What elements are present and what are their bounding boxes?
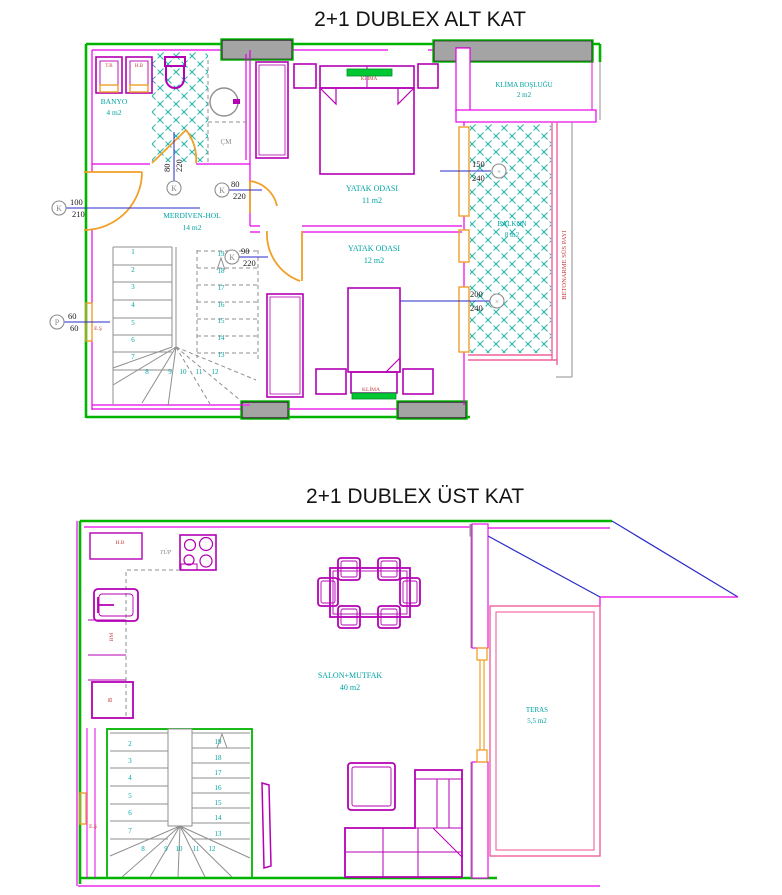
svg-text:11: 11 — [193, 845, 200, 853]
fridge: B — [92, 682, 133, 718]
svg-text:15: 15 — [215, 799, 223, 807]
svg-text:K: K — [171, 184, 177, 193]
svg-text:2: 2 — [131, 266, 135, 274]
svg-text:MERDİVEN-HOL: MERDİVEN-HOL — [163, 211, 221, 220]
counter-edge — [126, 570, 180, 718]
ac-unit-bedroom2 — [352, 393, 396, 399]
svg-text:4 m2: 4 m2 — [106, 108, 121, 117]
alt-bedroom2-furniture: KLİMA — [267, 288, 433, 399]
svg-text:10: 10 — [180, 368, 188, 376]
kitchen-sink — [94, 589, 138, 621]
dim-90-220: K 90 220 — [225, 246, 268, 268]
dishwasher-label: BM — [109, 633, 115, 642]
svg-text:60: 60 — [68, 311, 77, 321]
svg-text:150: 150 — [472, 159, 485, 169]
svg-text:16: 16 — [218, 301, 226, 309]
svg-text:18: 18 — [215, 754, 223, 762]
svg-text:×: × — [495, 298, 499, 306]
title-alt-kat: 2+1 DUBLEX ALT KAT — [314, 8, 526, 31]
es-label-ust: E.Ş — [89, 824, 97, 830]
svg-text:15: 15 — [218, 317, 226, 325]
svg-text:220: 220 — [174, 159, 184, 172]
hb-label: H.B — [135, 64, 144, 69]
stove — [180, 535, 216, 570]
svg-text:5: 5 — [131, 319, 135, 327]
svg-text:TERAS: TERAS — [526, 706, 548, 714]
svg-text:1: 1 — [131, 248, 135, 256]
svg-text:6: 6 — [131, 336, 135, 344]
ust-dining-set — [318, 558, 420, 628]
tb-label: T.B — [105, 64, 113, 69]
coffee-table — [348, 763, 395, 810]
svg-text:8 m2: 8 m2 — [505, 231, 520, 239]
svg-text:220: 220 — [233, 191, 246, 201]
ust-sofa-set — [345, 763, 462, 877]
svg-text:6: 6 — [128, 809, 132, 817]
svg-text:17: 17 — [218, 284, 226, 292]
svg-text:4: 4 — [128, 774, 132, 782]
ust-kitchen: H.B TÜP BM B — [88, 533, 216, 718]
washing-machine: ÇM — [208, 60, 248, 165]
svg-text:BALKON: BALKON — [497, 220, 526, 228]
svg-text:100: 100 — [70, 197, 83, 207]
floor-plan-sheet: 2+1 DUBLEX ALT KAT 2+1 DUBLEX ÜST KAT — [0, 0, 782, 895]
corner-sofa — [345, 770, 462, 877]
svg-text:K: K — [219, 186, 225, 195]
svg-text:18: 18 — [218, 267, 226, 275]
svg-text:14: 14 — [218, 334, 226, 342]
svg-text:12: 12 — [209, 845, 217, 853]
svg-text:90: 90 — [241, 246, 250, 256]
es-label-alt: E.Ş — [94, 326, 102, 332]
salon-label: SALON+MUTFAK — [318, 671, 383, 680]
ust-roof — [470, 521, 738, 606]
svg-text:19: 19 — [218, 250, 226, 258]
svg-text:9: 9 — [164, 845, 168, 853]
svg-text:220: 220 — [243, 258, 256, 268]
svg-text:240: 240 — [472, 173, 485, 183]
hb-label-ust: H.B — [115, 540, 124, 546]
svg-text:17: 17 — [215, 769, 223, 777]
svg-text:5: 5 — [128, 792, 132, 800]
svg-text:K: K — [229, 253, 235, 262]
svg-text:240: 240 — [470, 303, 483, 313]
tv-unit — [262, 783, 271, 868]
svg-text:60: 60 — [70, 323, 79, 333]
svg-text:4: 4 — [131, 301, 135, 309]
svg-text:200: 200 — [470, 289, 483, 299]
svg-text:K: K — [56, 204, 62, 213]
svg-text:YATAK ODASI: YATAK ODASI — [348, 244, 400, 253]
svg-text:12: 12 — [212, 368, 220, 376]
alt-stairs: 1 2 3 4 5 6 7 8 9 10 11 12 13 14 15 16 1… — [113, 247, 258, 406]
svg-text:10: 10 — [176, 845, 184, 853]
plan-ust-kat: TERAS 5,5 m2 H.B TÜP BM — [77, 521, 738, 886]
svg-text:19: 19 — [215, 738, 223, 746]
svg-text:3: 3 — [131, 283, 135, 291]
ac-label-2: KLİMA — [362, 386, 380, 393]
ac-unit-bedroom1 — [347, 69, 392, 76]
svg-text:2 m2: 2 m2 — [517, 91, 532, 99]
betonarme-label: BETONARME SÜS PAYI — [561, 230, 568, 299]
svg-text:7: 7 — [128, 827, 132, 835]
svg-text:12 m2: 12 m2 — [364, 256, 384, 265]
svg-text:B: B — [107, 697, 114, 702]
svg-text:2: 2 — [128, 740, 132, 748]
svg-text:9: 9 — [168, 368, 172, 376]
svg-text:8: 8 — [141, 845, 145, 853]
svg-text:BANYO: BANYO — [101, 97, 128, 106]
svg-text:14: 14 — [215, 814, 223, 822]
svg-text:YATAK ODASI: YATAK ODASI — [346, 184, 398, 193]
svg-text:3: 3 — [128, 757, 132, 765]
svg-text:KLİMA BOŞLUĞU: KLİMA BOŞLUĞU — [495, 81, 552, 89]
svg-text:7: 7 — [131, 353, 135, 361]
svg-text:11 m2: 11 m2 — [362, 196, 382, 205]
plan-alt-kat: T.B H.B ÇM — [50, 39, 600, 419]
svg-text:8: 8 — [145, 368, 149, 376]
svg-text:11: 11 — [196, 368, 203, 376]
svg-text:16: 16 — [215, 784, 223, 792]
ust-stairs: 2 3 4 5 6 7 8 9 10 11 12 13 14 15 16 17 … — [80, 728, 252, 878]
svg-text:80: 80 — [162, 164, 172, 173]
floor-plan-drawing: 2+1 DUBLEX ALT KAT 2+1 DUBLEX ÜST KAT — [0, 0, 782, 895]
ac-label-1: KLİMA — [361, 76, 378, 82]
alt-bedroom1-furniture: KLİMA — [256, 62, 438, 174]
svg-text:5,5 m2: 5,5 m2 — [527, 717, 547, 725]
title-ust-kat: 2+1 DUBLEX ÜST KAT — [306, 485, 524, 508]
ust-salon-right-wall — [471, 524, 488, 878]
tup-label: TÜP — [160, 548, 172, 556]
svg-text:×: × — [497, 168, 501, 176]
svg-text:13: 13 — [218, 351, 226, 359]
svg-text:40 m2: 40 m2 — [340, 683, 360, 692]
cm-label: ÇM — [221, 138, 233, 146]
svg-text:80: 80 — [231, 179, 240, 189]
svg-text:13: 13 — [215, 830, 223, 838]
counter-divisions — [88, 620, 126, 680]
alt-bathroom-tile-hatch — [152, 52, 208, 162]
svg-text:210: 210 — [72, 209, 85, 219]
svg-text:14 m2: 14 m2 — [183, 223, 202, 232]
ust-terrace: TERAS 5,5 m2 — [490, 606, 600, 856]
svg-text:P: P — [55, 318, 60, 327]
